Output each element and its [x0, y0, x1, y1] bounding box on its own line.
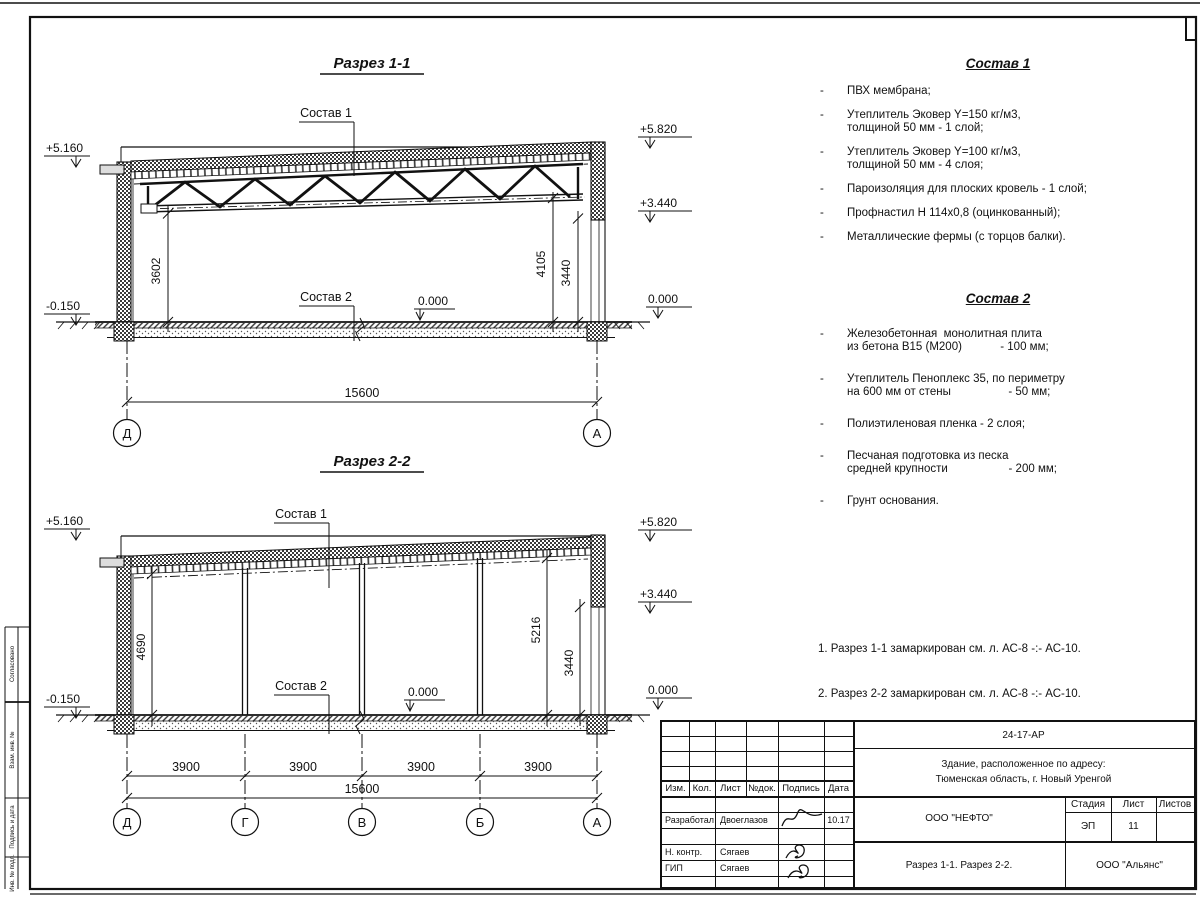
dash-bullet: [818, 328, 847, 354]
canopy: [100, 558, 124, 567]
dimension-label: 4690: [134, 633, 148, 660]
note-line: 1. Разрез 1-1 замаркирован см. л. АС-8 -…: [818, 642, 1081, 657]
contractor-name: ООО "Альянс": [1065, 843, 1194, 887]
floor-slab: [56, 318, 650, 341]
axis-bubble-label: А: [593, 426, 602, 441]
dimension-label: 3900: [289, 760, 317, 774]
elevation-label: -0.150: [46, 692, 80, 706]
list-item: Полиэтиленовая пленка - 2 слоя;: [818, 418, 1178, 431]
section-2-title: Разрез 2-2: [333, 453, 411, 470]
stage-value: ЭП: [1065, 812, 1111, 841]
list-item: Пароизоляция для плоских кровель - 1 сло…: [818, 183, 1178, 196]
elevation-label: 0.000: [648, 292, 678, 306]
sostav1-title: Состав 1: [863, 56, 1133, 71]
dimension-label: 3440: [559, 259, 573, 286]
role-ncontrol: Н. контр.: [662, 844, 718, 860]
dash-bullet: [818, 450, 847, 476]
axis-bubble-label: Г: [241, 815, 248, 830]
left-stamp-labels: Согласовано Взам. инв. № Подпись и дата …: [9, 645, 16, 891]
sostav-leaders: Состав 1 Состав 2: [299, 106, 354, 341]
list-item: ПВХ мембрана;: [818, 85, 1178, 98]
dimension-label: 5216: [529, 616, 543, 643]
axis-bubble-label: Д: [123, 815, 132, 830]
dash-bullet: [818, 418, 847, 431]
dimension-label: 3900: [524, 760, 552, 774]
dash-bullet: [818, 207, 847, 220]
left-stamp-strip: [5, 627, 30, 889]
elevation-label: +5.160: [46, 514, 83, 528]
dash-bullet: [818, 373, 847, 399]
name-ncontrol: Сягаев: [717, 844, 781, 860]
dimension-label: 4105: [534, 250, 548, 277]
name-razrabotal: Двоеглазов: [717, 812, 781, 828]
elevation-label: +5.820: [640, 515, 677, 529]
section-2-2: Разрез 2-2: [44, 453, 692, 836]
object-name: Здание, расположенное по адресу: Тюменск…: [853, 748, 1194, 796]
elevation-label: +5.160: [46, 141, 83, 155]
section-1-title: Разрез 1-1: [333, 55, 410, 72]
canopy: [100, 165, 124, 174]
dimension-label: 15600: [345, 782, 380, 796]
company-name: ООО "НЕФТО": [853, 796, 1065, 841]
notes: 1. Разрез 1-1 замаркирован см. л. АС-8 -…: [818, 612, 1081, 732]
dash-bullet: [818, 231, 847, 244]
axis-bubble-label: Б: [476, 815, 485, 830]
axis-bubble-label: А: [593, 815, 602, 830]
list-item: Утеплитель Пеноплекс 35, по периметру на…: [818, 373, 1178, 399]
elevation-label: +3.440: [640, 196, 677, 210]
sheet-title: Разрез 1-1. Разрез 2-2.: [853, 843, 1065, 887]
col-header-date: Дата: [824, 780, 853, 796]
col-header-kol: Кол.: [689, 780, 715, 796]
col-header-list: Лист: [715, 780, 746, 796]
axis-dimensions: 3900 3900 3900 3900 15600 Д Г В Б А: [114, 734, 611, 836]
dimension-label: 3440: [562, 649, 576, 676]
sostav2-callout: Состав 2: [275, 679, 327, 693]
corner-doc-box: [1186, 17, 1196, 40]
list-item: Металлические фермы (с торцов балки).: [818, 231, 1178, 244]
strip-label: Согласовано: [10, 645, 16, 682]
dash-bullet: [818, 146, 847, 172]
sostav2-block: Состав 2 Железобетонная монолитная плита…: [818, 291, 1178, 527]
sostav2-callout: Состав 2: [300, 290, 352, 304]
dash-bullet: [818, 495, 847, 508]
dash-bullet: [818, 183, 847, 196]
sostav2-title: Состав 2: [863, 291, 1133, 306]
axis-bubble-label: В: [358, 815, 367, 830]
sostav1-block: Состав 1 ПВХ мембрана; Утеплитель Эковер…: [818, 56, 1178, 255]
section-1-1: Разрез 1-1: [44, 55, 692, 447]
list-item: Профнастил Н 114х0,8 (оцинкованный);: [818, 207, 1178, 220]
role-gip: ГИП: [662, 860, 718, 876]
axis-bubble-label: Д: [123, 426, 132, 441]
list-item: Грунт основания.: [818, 495, 1178, 508]
signature-razrabotal: [780, 802, 824, 832]
dimension-label: 3602: [149, 257, 163, 284]
col-header-doc: №док.: [746, 780, 778, 796]
floor-slab: [56, 711, 650, 734]
doc-number: 24-17-АР: [853, 722, 1194, 748]
note-line: 2. Разрез 2-2 замаркирован см. л. АС-8 -…: [818, 687, 1081, 702]
role-razrabotal: Разработал: [662, 812, 718, 828]
sheet-header: Лист: [1111, 796, 1156, 812]
elevation-label: -0.150: [46, 299, 80, 313]
drawing-sheet: Согласовано Взам. инв. № Подпись и дата …: [0, 0, 1200, 900]
title-block: Изм. Кол. Лист №док. Подпись Дата Разраб…: [660, 720, 1196, 889]
col-header-izm: Изм.: [662, 780, 689, 796]
dash-bullet: [818, 109, 847, 135]
sheets-header: Листов: [1156, 796, 1194, 812]
dash-bullet: [818, 85, 847, 98]
sheet-value: 11: [1111, 812, 1156, 841]
dimension-label: 3900: [407, 760, 435, 774]
stage-header: Стадия: [1065, 796, 1111, 812]
strip-label: Инв. № подл.: [9, 854, 16, 892]
col-header-sign: Подпись: [778, 780, 824, 796]
dimension-label: 3900: [172, 760, 200, 774]
dimension-label: 15600: [345, 386, 380, 400]
elevation-label: +5.820: [640, 122, 677, 136]
date-razrabotal: 10.17: [824, 812, 853, 828]
elevation-label: 0.000: [408, 685, 438, 699]
list-item: Железобетонная монолитная плита из бетон…: [818, 328, 1178, 354]
list-item: Утеплитель Эковер Y=100 кг/м3, толщиной …: [818, 146, 1178, 172]
axis-dimensions: 15600 Д А: [114, 340, 611, 447]
vertical-dimensions: 3602 4105 3440: [149, 192, 583, 332]
elevation-label: 0.000: [648, 683, 678, 697]
strip-label: Взам. инв. №: [9, 731, 16, 768]
list-item: Песчаная подготовка из песка средней кру…: [818, 450, 1178, 476]
elevation-label: 0.000: [418, 294, 448, 308]
sostav-leaders: Состав 1 Состав 2: [274, 507, 329, 734]
sostav1-callout: Состав 1: [275, 507, 327, 521]
sostav1-callout: Состав 1: [300, 106, 352, 120]
strip-label: Подпись и дата: [10, 805, 16, 849]
signature-sjagaev: [780, 840, 824, 886]
elevation-label: +3.440: [640, 587, 677, 601]
name-gip: Сягаев: [717, 860, 781, 876]
list-item: Утеплитель Эковер Y=150 кг/м3, толщиной …: [818, 109, 1178, 135]
